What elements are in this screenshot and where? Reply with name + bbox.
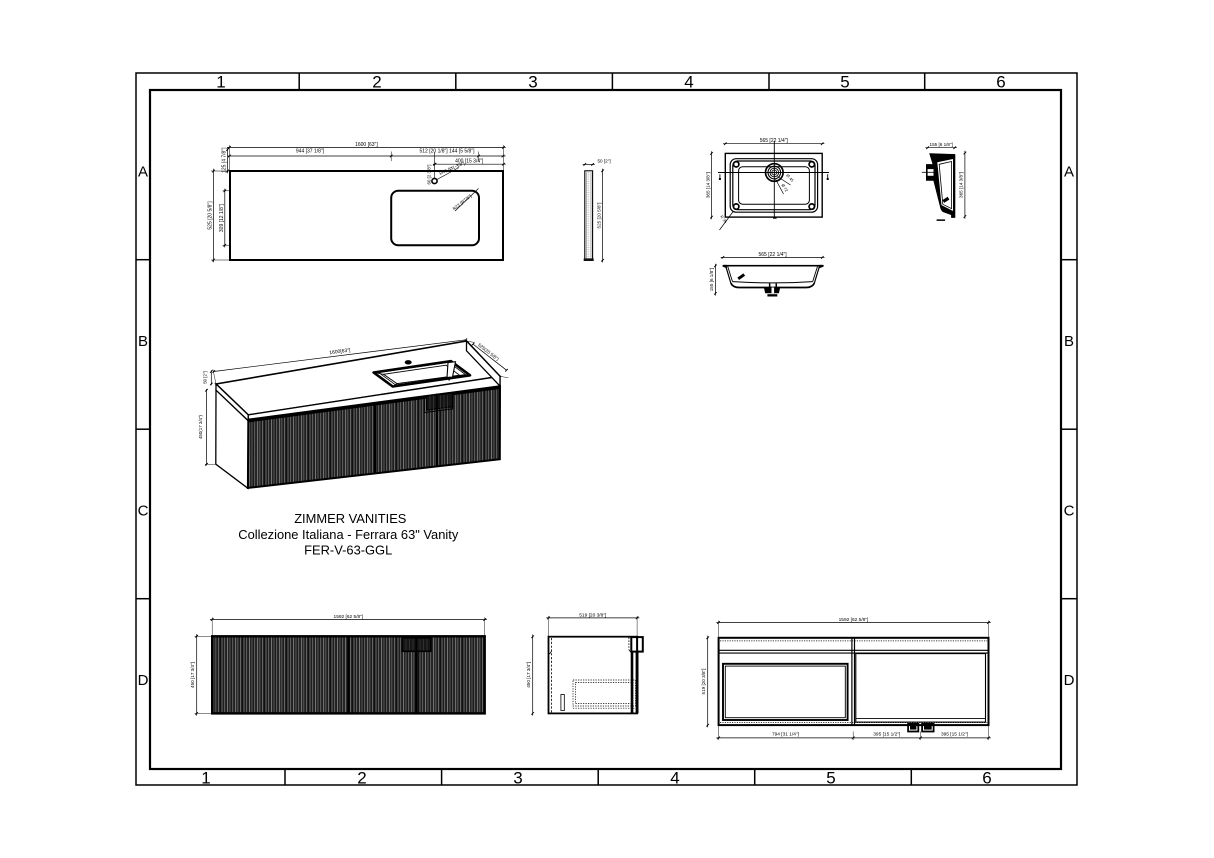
- svg-text:50 [2"]: 50 [2"]: [598, 158, 611, 163]
- svg-text:525 [20 5/8"]: 525 [20 5/8"]: [208, 201, 214, 230]
- svg-text:565 [22 1/4"]: 565 [22 1/4"]: [759, 252, 788, 258]
- svg-text:3: 3: [513, 769, 522, 788]
- svg-text:6: 6: [996, 73, 1005, 92]
- svg-text:944 [37 1/8"]: 944 [37 1/8"]: [296, 149, 325, 155]
- svg-text:4: 4: [684, 73, 693, 92]
- svg-text:155 [6 1/8"]: 155 [6 1/8"]: [930, 142, 953, 147]
- svg-text:125 [4 7/8"]: 125 [4 7/8"]: [222, 147, 228, 173]
- svg-text:5: 5: [826, 769, 835, 788]
- svg-text:525 [20 5/8"]: 525 [20 5/8"]: [596, 203, 601, 229]
- svg-text:450(17 3/4"): 450(17 3/4"): [198, 414, 203, 439]
- svg-text:60 [2 3/8"]: 60 [2 3/8"]: [427, 165, 432, 185]
- svg-text:519 [20 3/8"]: 519 [20 3/8"]: [579, 612, 606, 618]
- svg-text:794 [31 1/4"]: 794 [31 1/4"]: [772, 732, 799, 738]
- svg-text:C: C: [138, 503, 149, 520]
- svg-text:1592 [62 5/8"]: 1592 [62 5/8"]: [839, 617, 869, 623]
- svg-text:519 [20 3/8"]: 519 [20 3/8"]: [701, 669, 706, 695]
- svg-text:450 [17 3/4"]: 450 [17 3/4"]: [190, 662, 195, 688]
- svg-text:50 [2"]: 50 [2"]: [202, 371, 207, 384]
- svg-text:B: B: [138, 333, 148, 350]
- svg-text:ZIMMER VANITIES: ZIMMER VANITIES: [294, 511, 406, 526]
- svg-text:395 [15 1/2"]: 395 [15 1/2"]: [873, 732, 900, 738]
- svg-text:395 [15 1/2"]: 395 [15 1/2"]: [941, 732, 968, 738]
- svg-text:3: 3: [528, 73, 537, 92]
- svg-text:D: D: [138, 672, 149, 689]
- svg-text:2: 2: [357, 769, 366, 788]
- svg-text:1600 [63"]: 1600 [63"]: [355, 142, 378, 148]
- svg-text:C: C: [1064, 503, 1075, 520]
- svg-text:Collezione Italiana - Ferrara: Collezione Italiana - Ferrara 63" Vanity: [238, 527, 459, 542]
- svg-text:A: A: [138, 164, 148, 181]
- svg-text:1: 1: [201, 769, 210, 788]
- svg-text:365 [14 3/8"]: 365 [14 3/8"]: [959, 172, 964, 198]
- svg-text:D: D: [1064, 672, 1075, 689]
- svg-text:B: B: [1064, 333, 1074, 350]
- svg-text:565 [22 1/4"]: 565 [22 1/4"]: [760, 138, 789, 144]
- svg-text:5: 5: [840, 73, 849, 92]
- svg-text:365 [14 3/8"]: 365 [14 3/8"]: [706, 172, 711, 198]
- svg-text:1: 1: [216, 73, 225, 92]
- svg-text:512 [20 1/8"] 144 [5 5/8"]: 512 [20 1/8"] 144 [5 5/8"]: [420, 149, 476, 155]
- svg-text:4: 4: [670, 769, 679, 788]
- svg-text:FER-V-63-GGL: FER-V-63-GGL: [304, 543, 392, 558]
- svg-text:6: 6: [982, 769, 991, 788]
- svg-text:155 [6 1/8"]: 155 [6 1/8"]: [709, 268, 714, 291]
- svg-text:2: 2: [372, 73, 381, 92]
- svg-text:A: A: [1064, 164, 1074, 181]
- svg-text:450 [17 3/4"]: 450 [17 3/4"]: [526, 662, 531, 688]
- svg-text:1592 [62 5/8"]: 1592 [62 5/8"]: [334, 614, 364, 620]
- svg-text:309 [12 1/8"]: 309 [12 1/8"]: [219, 203, 225, 232]
